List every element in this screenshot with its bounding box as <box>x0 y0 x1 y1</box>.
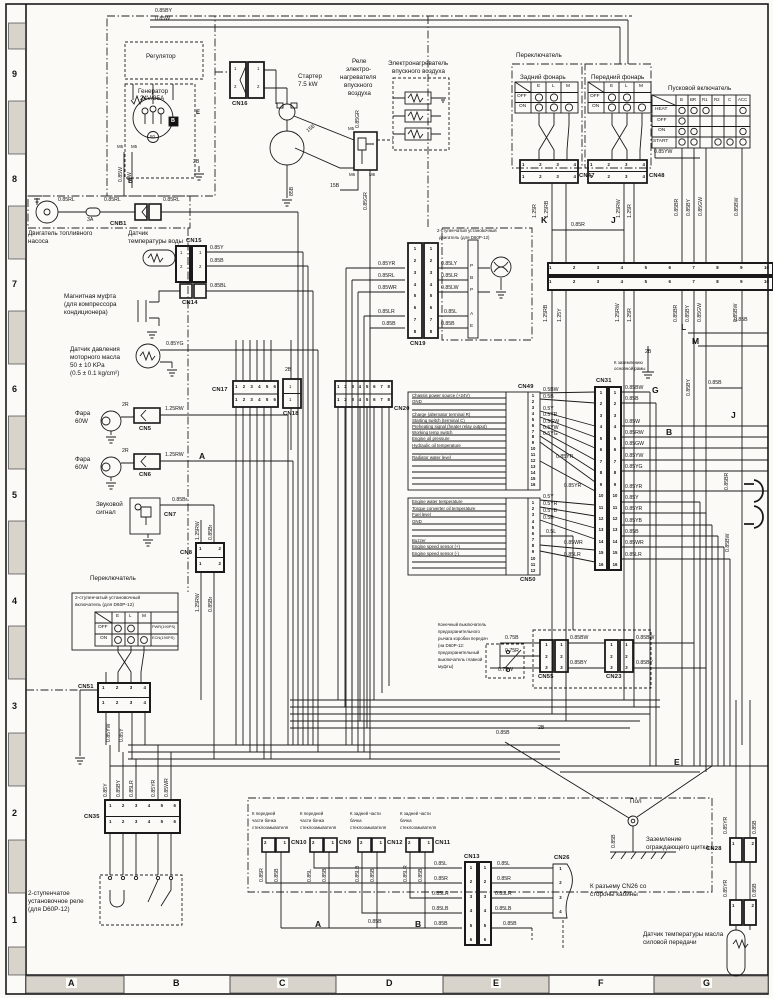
wire-label: 0.85YW <box>654 150 672 156</box>
relay-label: электро- <box>346 66 371 73</box>
grid-col-label: C <box>277 978 288 988</box>
cn31-pins: 12345678910111213141516 <box>595 390 607 567</box>
cn55-pins: 123 <box>556 642 567 670</box>
m-marker: M <box>692 337 699 347</box>
wire-label: 0.85RL <box>163 198 180 204</box>
wire-label: 0.85R <box>497 877 511 883</box>
cn28-pins: 12 <box>732 841 754 846</box>
connector-label: CN7 <box>164 512 176 519</box>
connector-label: CN10 <box>291 840 307 847</box>
b-marker: B <box>128 178 133 186</box>
washer-label: бачка <box>350 818 362 823</box>
wire-label: 0.85YR <box>556 455 573 461</box>
grid-col-label: E <box>491 978 501 988</box>
connector-label: CN18 <box>283 411 299 418</box>
harness-pins: 12345678910 <box>549 265 769 270</box>
connector-label: CN26 <box>554 855 570 862</box>
grid-row-label: 6 <box>12 384 17 394</box>
setting-relay-label: (для D60P-12) <box>28 906 70 913</box>
cn17-pins: 123456 <box>235 384 276 389</box>
connector-label: CN13 <box>464 854 480 861</box>
cn51-pins: 1234 <box>102 685 146 690</box>
col-header: ACC <box>738 97 747 102</box>
washer-label: стеклоомывателя <box>252 825 288 830</box>
wire-label: 0.85B <box>275 868 281 882</box>
cn13-pins: 123456 <box>465 865 477 942</box>
wire-label: 0.85B <box>371 868 377 882</box>
wire-label: 0.85B <box>708 381 722 387</box>
oil-pressure-label: (0.5 ± 0.1 kg/cm²) <box>70 370 119 377</box>
cn47-pins: 1234 <box>522 174 576 179</box>
wire-label: 0.85RL <box>58 198 75 204</box>
shield-ground-label: ограждающего щитка <box>646 844 709 851</box>
grid-row-label: 9 <box>12 69 17 79</box>
wire-label: 0.85LB <box>432 907 448 913</box>
pin-number: 2 <box>199 264 201 269</box>
wire-label: 0.85YR <box>625 507 642 513</box>
col-header: E <box>537 84 540 90</box>
cn23-pins: 123 <box>606 642 617 670</box>
col-header: M <box>639 84 643 90</box>
wire-label: 0.85BY <box>687 199 693 216</box>
grid-row-label: 8 <box>12 174 17 184</box>
connector-label: CN9 <box>339 840 351 847</box>
wire-label: 0.75W <box>498 668 513 674</box>
wire-label: 0.85YR <box>724 880 730 897</box>
mode-label: ECN(190PS) <box>152 636 175 640</box>
generator-value: 50 <box>150 134 155 139</box>
row-header: ON <box>658 128 665 134</box>
col-header: BR <box>690 97 696 102</box>
terminal-b-marker: B <box>170 118 176 124</box>
limit-switch-label: рычага коробки передач <box>438 636 488 641</box>
wire-label: 0.85Y <box>625 496 639 502</box>
wire-label: 0.85LR <box>432 892 449 898</box>
wire-label: 0.85LR <box>495 892 512 898</box>
cn26-pins: 1234 <box>556 866 565 914</box>
cn50-pins: 123456789101112 <box>528 500 538 573</box>
pin-number: 1 <box>257 66 259 71</box>
relay-label: воздуха <box>348 90 371 97</box>
pin-number: 2 <box>234 84 236 89</box>
col-header: E <box>116 614 119 620</box>
wire-label: 1.25RW <box>616 303 622 322</box>
col-header: M <box>566 84 570 90</box>
wire-label: 0.85W <box>155 17 170 23</box>
wire-label: 0.85L <box>434 862 447 868</box>
cn31-pins: 12345678910111213141516 <box>609 390 621 567</box>
wire-label: 0.85BW <box>570 636 588 642</box>
wire-label: 0.85R <box>434 877 448 883</box>
connector-label: CN48 <box>649 173 665 180</box>
relay-label: впускного <box>344 82 372 89</box>
washer-label: К передней <box>252 811 275 816</box>
connector-label: CN51 <box>78 684 94 691</box>
cn11-pins: 21 <box>408 840 430 845</box>
wire-label: 0.85YR <box>152 780 158 797</box>
cn13-pins: 123456 <box>479 865 491 942</box>
setting-relay-label: установочное реле <box>28 898 84 905</box>
wire-label: 0.85YB <box>625 519 642 525</box>
cn49-pins: 12345678910111213141516 <box>528 393 538 487</box>
pin-number: 1 <box>234 66 236 71</box>
wire-label: 0.85YR <box>378 262 395 268</box>
wire-label: 0.85GR <box>356 110 362 128</box>
wire-label: 1.25RW <box>165 407 184 413</box>
signal-row: Chassis power source (+24V) <box>412 393 470 398</box>
shield-ground-label: Заземление <box>646 836 682 843</box>
wire-label: 0.85LW <box>441 286 459 292</box>
wire-label: 0.85Y <box>210 246 224 252</box>
wire-label: M5 <box>131 144 137 149</box>
b-marker: B <box>666 428 672 438</box>
e-marker: E <box>674 758 680 768</box>
cn17-pins: 123456 <box>235 397 276 402</box>
row-header: OFF <box>517 94 527 100</box>
signal-row: GND <box>412 399 422 404</box>
start-switch-title: Пусковой включатель <box>668 85 731 92</box>
wire-label: 1.25RW <box>196 521 202 540</box>
relay-label: Реле <box>352 58 366 65</box>
cn9-pins: 21 <box>312 840 334 845</box>
air-heater-label: Электронагреватель <box>388 60 448 67</box>
wire-label: 0.85GR <box>364 192 370 210</box>
wire-label: 0.85BY <box>636 661 653 667</box>
washer-label: К задней части <box>400 811 431 816</box>
wire-label: 0.85W <box>119 167 125 182</box>
pin-number: 2 <box>180 264 182 269</box>
wire-label: 0.85RW <box>625 431 644 437</box>
row-header: ON <box>592 104 599 110</box>
wire-label: 0.85BW <box>735 198 741 216</box>
signal-row: Engine speed sensor (-) <box>412 551 459 556</box>
cn10-pins: 21 <box>264 840 286 845</box>
signal-row: GND <box>412 519 422 524</box>
wire-label: 0.85RL <box>104 198 121 204</box>
connector-label: CN19 <box>410 341 426 348</box>
wire-label: 0.85YR <box>724 817 730 834</box>
connector-label: CN28 <box>706 846 722 853</box>
wire-label: 0.85BW <box>625 386 643 392</box>
a-marker: A <box>199 452 205 462</box>
grid-col-label: A <box>66 978 77 988</box>
grid-col-label: F <box>596 978 606 988</box>
frame-ground-note: основной рамы <box>614 366 645 371</box>
connector-label: CN35 <box>84 814 100 821</box>
wire-label: 0.75R <box>505 649 519 655</box>
grid-row-label: 1 <box>12 915 17 925</box>
wire-label: 1.25Y <box>558 308 564 322</box>
connector-label: CNB1 <box>110 221 127 228</box>
washer-label: части бачка <box>252 818 276 823</box>
connector-label: CN20 <box>394 406 410 413</box>
wire-label: 0.85B <box>441 322 455 328</box>
wire-label: 2B <box>645 350 651 356</box>
cn35-pins: 123456 <box>109 803 176 808</box>
wire-label: 0.85Y <box>104 783 110 797</box>
washer-label: бачка <box>400 818 412 823</box>
wire-label: 0.85Br <box>209 597 215 612</box>
wire-label: 0.85GW <box>698 303 704 322</box>
col-header: R2 <box>714 97 720 102</box>
setting-motor-label: 2-ступенчатый установочный <box>437 228 497 233</box>
cn35-pins: 123456 <box>109 819 176 824</box>
wire-label: 0.85B <box>625 530 639 536</box>
floor-label: Пол <box>630 798 642 805</box>
wire-label: 0.85BW <box>726 534 732 552</box>
trans-oil-temp-label: силовой передачи <box>643 939 697 946</box>
oil-pressure-label: моторного масла <box>70 354 120 361</box>
pin-number: 1 <box>180 250 182 255</box>
wire-label: 0.85B <box>382 322 396 328</box>
wire-label: 0.85GW <box>699 197 705 216</box>
relay-label: нагревателя <box>340 74 376 81</box>
cn28b-pins: 12 <box>732 903 754 908</box>
wire-label: 0.85B <box>496 731 510 737</box>
signal-row: Engine speed sensor (+) <box>412 544 460 549</box>
connector-label: CN6 <box>139 472 151 479</box>
limit-switch-label: предохранительный <box>438 650 479 655</box>
pin-number: 1 <box>289 384 291 389</box>
col-header: L <box>129 614 132 620</box>
wire-label: 1.25RW <box>617 199 623 218</box>
connector-label: CN11 <box>435 840 450 847</box>
wire-label: 0.5B <box>543 395 554 401</box>
regulator-label: Регулятор <box>146 53 176 60</box>
j-marker: J <box>731 411 736 421</box>
wire-label: 1.25RB <box>544 305 550 322</box>
cn19-pins: 12345678 <box>408 246 422 334</box>
cn8-pins: 12 <box>199 546 221 551</box>
wire-label: M6 <box>349 172 355 177</box>
row-header: HEAT <box>655 107 667 113</box>
wire-label: 0.85WR <box>378 286 397 292</box>
wire-label: 0.85LY <box>441 262 457 268</box>
pin-number: 2 <box>257 84 259 89</box>
cn20-pins: 12345678 <box>337 397 390 402</box>
signal-row: Hydraulic oil temperature <box>412 443 461 448</box>
clutch-label: кондиционера) <box>64 309 108 316</box>
row-header: START <box>653 139 668 145</box>
row-header: OFF <box>98 625 108 631</box>
row-header: ON <box>519 104 526 110</box>
grid-row-label: 3 <box>12 701 17 711</box>
wire-label: 0.85B <box>368 920 382 926</box>
wire-label: 2B <box>538 726 544 732</box>
headlight-wattage: 60W <box>75 418 88 425</box>
terminal: B <box>470 276 473 282</box>
wire-label: 0.85L <box>308 869 314 882</box>
wire-label: 0.85Y <box>120 728 126 742</box>
washer-label: стеклоомывателя <box>400 825 436 830</box>
wire-label: M6 <box>369 172 375 177</box>
cn48-pins: 1234 <box>590 162 645 167</box>
air-heater-label: впускного воздуха <box>392 68 445 75</box>
washer-label: К задней части <box>350 811 381 816</box>
harness-pins: 12345678910 <box>549 279 769 284</box>
wire-label: 0.85BR <box>674 305 680 322</box>
wire-label: 0.85W <box>625 420 640 426</box>
wire-label: 0.85LB <box>495 907 511 913</box>
connector-label: CN12 <box>387 840 403 847</box>
wire-label: 0.85LR <box>625 553 642 559</box>
signal-row: Torque converter oil temperature <box>412 506 475 511</box>
wire-label: 1.25R <box>628 308 634 322</box>
wire-label: 0.85LR <box>441 274 458 280</box>
wire-label: 0.85BY <box>686 305 692 322</box>
wire-label: 0.5B <box>543 516 554 522</box>
grid-row-label: 4 <box>12 596 17 606</box>
wire-label: 0.85B <box>734 318 748 324</box>
wire-label: M5 <box>348 126 354 131</box>
limit-switch-label: выключатель главной <box>438 657 482 662</box>
clutch-label: (для компрессора <box>64 301 117 308</box>
setting-relay-label: 2-ступенчатое <box>28 890 70 897</box>
setting-motor-label: двигатель (для D60P-12) <box>439 235 490 240</box>
wire-label: 0.85B <box>503 922 517 928</box>
pin-number: 1 <box>199 250 201 255</box>
wire-label: 1.25R <box>533 204 539 218</box>
wire-label: 2R <box>122 449 129 455</box>
water-temp-label: температуры воды <box>128 238 183 245</box>
rear-lamp-label: Задний фонарь <box>520 74 566 81</box>
signal-row: Engine water temperature <box>412 499 463 504</box>
wire-label: 0.85WR <box>625 541 644 547</box>
wire-label: 0.5YG <box>543 432 558 438</box>
limit-switch-label: муфты) <box>438 664 453 669</box>
limit-switch-label: (на D60P-12: <box>438 643 464 648</box>
grid-row-label: 5 <box>12 490 17 500</box>
signal-row: Radiator water level <box>412 455 451 460</box>
cab-note: К разъему CN26 со <box>590 883 646 890</box>
grid-col-label: G <box>701 978 712 988</box>
signal-row: Charge (alternator terminal R) <box>412 412 470 417</box>
terminal: P <box>470 264 473 270</box>
row-header: OFF <box>590 94 600 100</box>
connector-label: CN55 <box>538 674 554 681</box>
wire-label: 0.85RL <box>378 274 395 280</box>
signal-row: Fuel level <box>412 512 431 517</box>
connector-label: CN23 <box>606 674 622 681</box>
connector-label: CN47 <box>579 173 595 180</box>
limit-switch-label: Конечный выключатель <box>438 622 486 627</box>
fuel-pump-label: насоса <box>28 238 48 245</box>
cn19-pins: 12345678 <box>424 246 438 334</box>
wire-label: 0.85B <box>753 883 759 897</box>
grid-col-label: D <box>384 978 395 988</box>
wire-label: 2B <box>285 368 291 374</box>
wire-label: 0.85LR <box>130 780 136 797</box>
washer-label: К передней <box>300 811 323 816</box>
wire-label: 0.85R <box>571 223 585 229</box>
wire-label: 0.85Br <box>209 525 215 540</box>
wire-label: 0.85BR <box>675 199 681 216</box>
grid-col-label: B <box>171 978 182 988</box>
oil-pressure-label: Датчик давления <box>70 346 120 353</box>
row-header: OFF <box>657 118 667 124</box>
oil-pressure-label: 50 ± 10 KPa <box>70 362 105 369</box>
frame-ground-note: К заземлению <box>614 360 643 365</box>
washer-label: стеклоомывателя <box>300 825 336 830</box>
wire-label: 0.75B <box>505 636 519 642</box>
connector-label: CN49 <box>518 384 534 391</box>
setting-switch-title: 2-ступенчатый установочный <box>75 596 140 602</box>
headlight-wattage: 60W <box>75 464 88 471</box>
b-marker: B <box>415 920 421 930</box>
wire-label: 0.85BL <box>210 284 226 290</box>
g-marker: G <box>652 386 659 396</box>
wire-label: 0.85L <box>497 862 510 868</box>
horn-label: сигнал <box>96 509 116 516</box>
wire-label: 0.85BW <box>636 636 654 642</box>
wire-label: 0.85B <box>210 259 224 265</box>
clutch-label: Магнитная муфта <box>64 293 116 300</box>
col-header: L <box>625 84 628 90</box>
connector-label: CN15 <box>186 238 202 245</box>
starter-label: Стартер <box>298 73 322 80</box>
wire-label: 0.85B <box>753 820 759 834</box>
terminal: P <box>470 288 473 294</box>
k-marker: K <box>541 216 547 226</box>
headlight-label: Фара <box>75 456 90 463</box>
signal-row: Working temp switch <box>412 430 452 435</box>
cn51-pins: 1234 <box>102 700 146 705</box>
front-lamp-label: Передний фонарь <box>591 74 644 81</box>
limit-switch-label: предохранительного <box>438 629 480 634</box>
signal-row: Engine oil pressure <box>412 436 450 441</box>
col-header: R1 <box>702 97 708 102</box>
trans-oil-temp-label: Датчик температуры масла <box>643 931 723 938</box>
connector-label: CN17 <box>212 387 228 394</box>
wire-label: 0.5L <box>546 530 556 536</box>
terminal: A <box>470 312 473 318</box>
cn23-pins: 123 <box>621 642 632 670</box>
wire-label: M5 <box>117 144 123 149</box>
connector-label: CN5 <box>139 426 151 433</box>
wire-label: 0.85Br <box>172 498 187 504</box>
col-header: B <box>680 97 683 102</box>
connector-label: CN50 <box>520 577 536 584</box>
wire-label: 0.85YR <box>625 485 642 491</box>
wire-label: 2R <box>122 403 129 409</box>
wire-label: 0.85B <box>434 922 448 928</box>
a-marker: A <box>315 920 321 930</box>
horn-label: Звуковой <box>96 501 123 508</box>
wire-label: 0.85B <box>419 868 425 882</box>
col-header: M <box>142 614 146 620</box>
wire-label: 0.85B <box>323 868 329 882</box>
cn20-pins: 12345678 <box>337 384 390 389</box>
wire-label: 1.25R <box>628 204 634 218</box>
wire-label: 0.85YG <box>166 342 184 348</box>
headlight-label: Фара <box>75 410 90 417</box>
starter-rating: 7.5 kW <box>298 81 318 88</box>
wire-label: 0.85WR <box>165 778 171 797</box>
wire-label: 2B <box>193 160 199 166</box>
cn12-pins: 21 <box>360 840 382 845</box>
terminal-e-marker: E <box>196 110 200 117</box>
switch-title: Переключатель <box>90 575 136 582</box>
cn48-pins: 1234 <box>590 174 645 179</box>
wire-label: 1.25RW <box>165 453 184 459</box>
cn8-pins: 12 <box>199 561 221 566</box>
wire-label: 0.85LB <box>356 866 362 882</box>
j-marker: J <box>611 216 616 226</box>
cn47-pins: 1234 <box>522 162 576 167</box>
wire-label: 0.85R <box>260 868 266 882</box>
wire-label: 15B <box>330 184 339 190</box>
wire-label: 0.85YW <box>625 454 643 460</box>
